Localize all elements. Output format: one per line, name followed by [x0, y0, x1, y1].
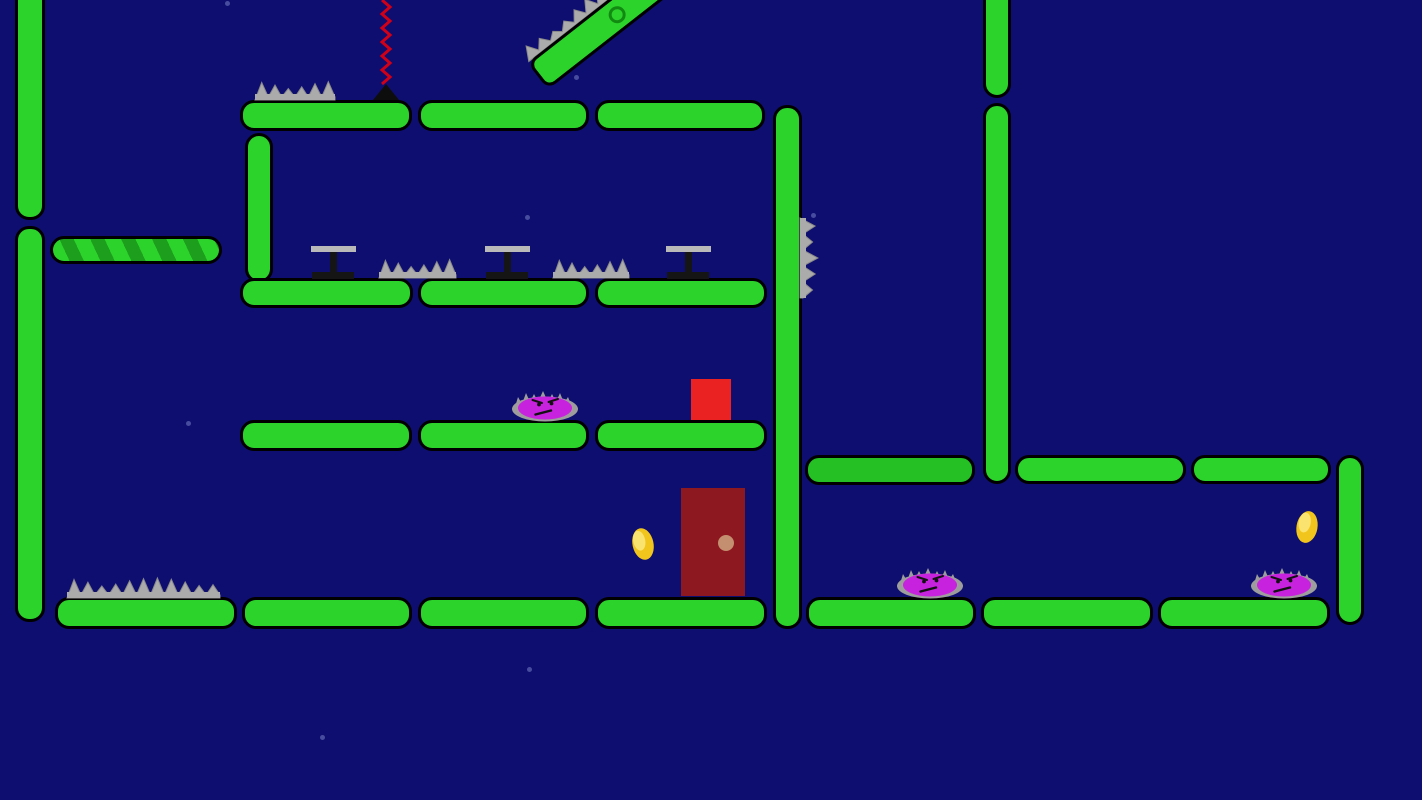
star [525, 215, 530, 220]
platform [418, 278, 589, 308]
moss-platform [805, 455, 975, 485]
platform [240, 100, 412, 131]
enemy [510, 386, 580, 422]
platform [595, 100, 765, 131]
platform [595, 420, 767, 451]
spike-strip [553, 259, 629, 278]
coin[interactable] [1293, 509, 1321, 545]
star [320, 735, 325, 740]
striped-platform [50, 236, 222, 264]
game-stage[interactable] [0, 0, 1422, 800]
star [527, 667, 532, 672]
platform [595, 278, 767, 308]
spike-strip [379, 259, 456, 278]
platform [1158, 597, 1330, 629]
star [225, 1, 230, 6]
table-stem [504, 252, 511, 272]
table-stem [330, 252, 337, 272]
pillar [773, 105, 802, 629]
enemy [1249, 563, 1319, 599]
door-knob [718, 535, 734, 551]
table-base [667, 272, 709, 279]
platform [806, 597, 976, 629]
table-base [312, 272, 354, 279]
platform [1191, 455, 1331, 484]
platform [1015, 455, 1186, 484]
platform [418, 100, 589, 131]
spike-strip [67, 578, 220, 598]
rope-zigzag [372, 0, 400, 100]
platform [981, 597, 1153, 629]
platform [418, 597, 589, 629]
star [186, 421, 191, 426]
coin[interactable] [629, 526, 657, 562]
pillar [245, 133, 273, 283]
exit-door[interactable] [681, 488, 745, 596]
rope-anchor [373, 84, 399, 100]
platform [595, 597, 767, 629]
enemy [895, 563, 965, 599]
pillar [983, 0, 1011, 98]
pillar [15, 0, 45, 220]
spike-strip [800, 218, 818, 298]
star [574, 75, 579, 80]
table-stem [685, 252, 692, 272]
pillar [1336, 455, 1364, 625]
platform [240, 420, 412, 451]
tilted-platform [527, 0, 687, 90]
spike-strip [255, 81, 335, 100]
tilted-platform-bar [527, 0, 687, 90]
pillar [983, 103, 1011, 484]
platform [242, 597, 412, 629]
table-base [486, 272, 528, 279]
platform [240, 278, 413, 308]
pillar [15, 226, 45, 622]
player-block[interactable] [691, 379, 731, 420]
platform [55, 597, 237, 629]
platform [418, 420, 589, 451]
